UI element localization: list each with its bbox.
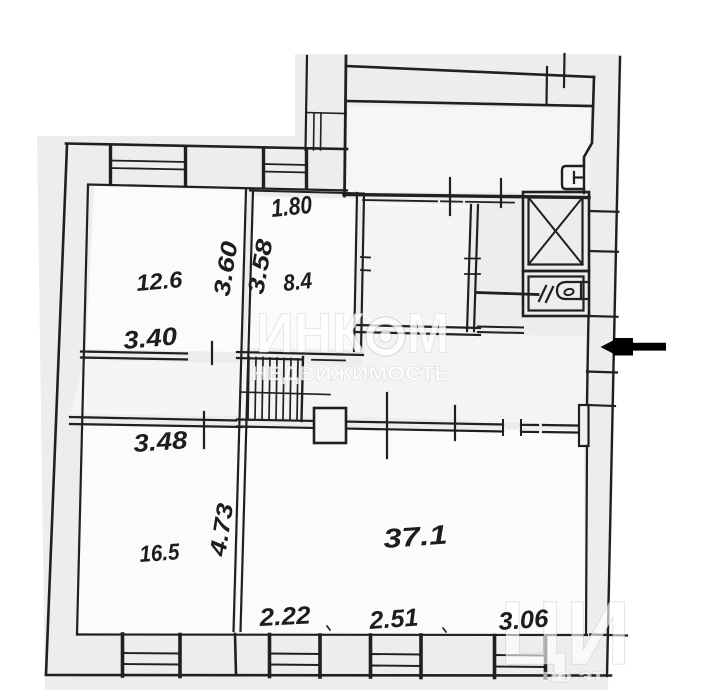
svg-text:3.06: 3.06 [497, 604, 550, 635]
svg-text:1.80: 1.80 [270, 191, 314, 223]
svg-text:ИНК: ИНК [256, 301, 365, 364]
svg-text:8.4: 8.4 [282, 267, 314, 296]
svg-text:М: М [407, 301, 449, 364]
svg-text:37.1: 37.1 [382, 520, 448, 554]
svg-text:2.51: 2.51 [367, 604, 419, 635]
svg-text:по эт: по эт [542, 666, 604, 686]
svg-text:2.22: 2.22 [258, 601, 312, 632]
svg-text:3.40: 3.40 [122, 322, 178, 355]
svg-text:НЕДВИЖИМОСТЬ: НЕДВИЖИМОСТЬ [251, 363, 451, 385]
svg-text:16.5: 16.5 [139, 538, 182, 567]
svg-text:12.6: 12.6 [135, 266, 183, 296]
svg-text:3.48: 3.48 [132, 426, 188, 458]
